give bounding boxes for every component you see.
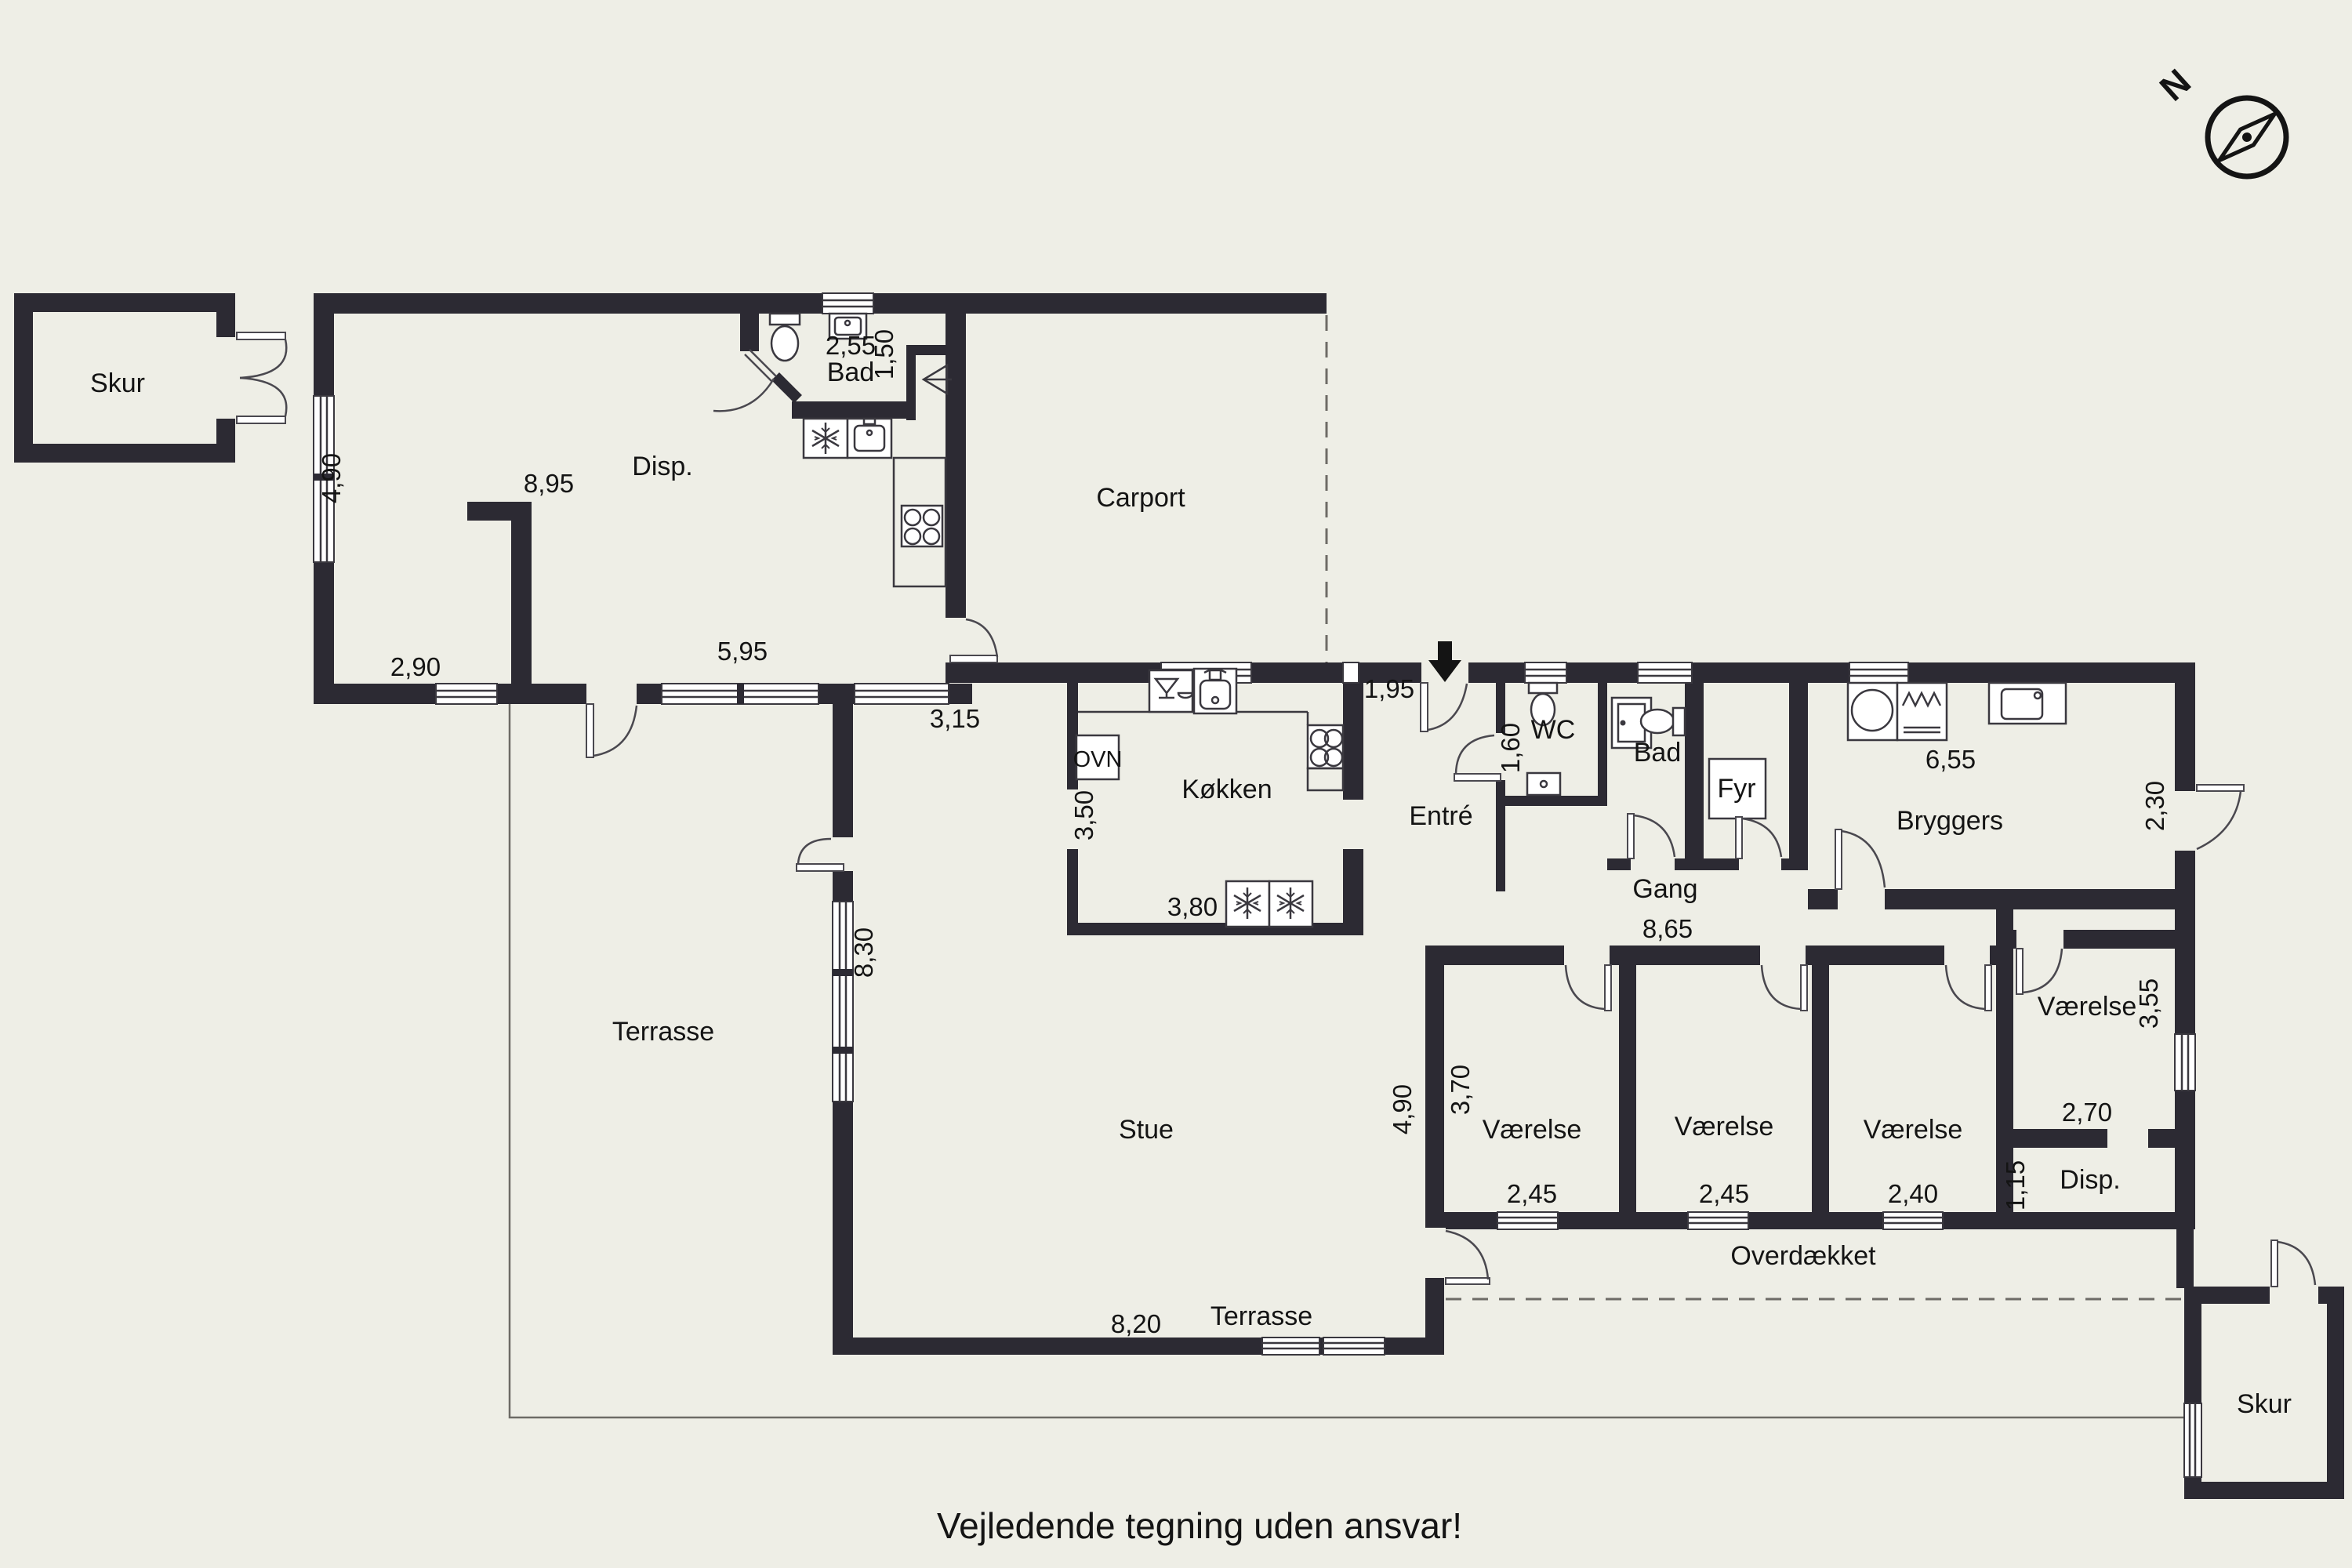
room-label-skur-nw: Skur <box>90 368 145 398</box>
door-room2 <box>1762 965 1807 1011</box>
floor-plan-drawing: Skur Disp. Bad Carport Køkken OVN Entré … <box>0 0 2352 1568</box>
freezer-icon <box>804 419 848 458</box>
window-315 <box>855 684 949 704</box>
dim-115: 1,15 <box>2001 1160 2030 1210</box>
dim-655: 6,55 <box>1926 745 1976 774</box>
freezer-icon <box>1226 881 1269 927</box>
dim-490-nw: 4,90 <box>317 453 346 503</box>
room-label-terrasse-west: Terrasse <box>612 1017 714 1047</box>
dim-595: 5,95 <box>717 637 768 666</box>
door-disp-terrace <box>586 704 637 757</box>
room-label-stue: Stue <box>1119 1115 1174 1145</box>
room-label-carport: Carport <box>1096 483 1185 513</box>
dim-270: 2,70 <box>2062 1098 2112 1127</box>
window-595 <box>662 684 818 704</box>
dim-160: 1,60 <box>1496 723 1525 773</box>
window-stue-south-2 <box>1323 1338 1385 1355</box>
room-label-skur-se: Skur <box>2237 1389 2292 1419</box>
door-bryggers <box>1835 829 1885 889</box>
window-290 <box>436 684 497 704</box>
door-stue-overdaekket <box>1446 1231 1490 1284</box>
window-bryggers <box>1849 662 1908 683</box>
door-bad-upper <box>713 350 776 411</box>
stove-icon <box>902 506 942 546</box>
window-room3 <box>1883 1212 1943 1229</box>
dim-230: 2,30 <box>2140 781 2169 831</box>
sink-icon <box>1194 669 1236 713</box>
room-label-overdaekket: Overdækket <box>1730 1241 1876 1271</box>
compass: N <box>2152 61 2286 176</box>
window-bad <box>1638 662 1692 683</box>
door-room4 <box>2016 949 2062 994</box>
dim-350: 3,50 <box>1069 790 1098 840</box>
dishwasher-icon <box>1149 670 1192 712</box>
door-skur-se <box>2271 1240 2315 1287</box>
window-room2 <box>1688 1212 1748 1229</box>
window-wc <box>1525 662 1566 683</box>
floor-plan-page: Skur Disp. Bad Carport Køkken OVN Entré … <box>0 0 2352 1568</box>
door-room3 <box>1946 965 1991 1011</box>
room-label-ovn: OVN <box>1073 747 1123 772</box>
dim-245-1: 2,45 <box>1507 1179 1557 1208</box>
kitchen-counter <box>1078 712 1308 725</box>
dim-290: 2,90 <box>390 652 441 681</box>
dim-315: 3,15 <box>930 704 980 733</box>
room-label-vaerelse-4: Værelse <box>2038 992 2137 1022</box>
stove-icon <box>1308 725 1343 790</box>
room-label-vaerelse-2: Værelse <box>1675 1112 1774 1142</box>
compass-north-label: N <box>2152 61 2198 109</box>
dim-895: 8,95 <box>524 469 574 498</box>
dim-245-2: 2,45 <box>1699 1179 1749 1208</box>
window-bad-upper <box>822 293 873 314</box>
drain-icon <box>924 365 952 394</box>
room-label-vaerelse-1: Værelse <box>1483 1115 1582 1145</box>
page-title: Vejledende tegning uden ansvar! <box>937 1505 1462 1546</box>
laundry-basket-icon <box>1897 683 1947 740</box>
window-entre-small <box>1343 662 1359 683</box>
sink-icon <box>1989 683 2066 724</box>
washing-machine-icon <box>1848 683 1897 740</box>
room-label-entre: Entré <box>1409 801 1472 831</box>
dim-240: 2,40 <box>1888 1179 1938 1208</box>
window-room1 <box>1497 1212 1558 1229</box>
door-entrance <box>1421 683 1467 731</box>
room-label-bad-upper: Bad <box>827 358 875 387</box>
room-label-kokken: Køkken <box>1181 775 1272 804</box>
door-bad <box>1628 814 1675 858</box>
toilet-icon <box>770 314 800 361</box>
room-label-vaerelse-3: Værelse <box>1864 1115 1963 1145</box>
dim-255: 2,55 <box>826 331 876 360</box>
door-bryggers-exterior <box>2197 785 2244 849</box>
sink-icon <box>848 419 891 458</box>
dim-355: 3,55 <box>2134 978 2163 1029</box>
room-label-bad: Bad <box>1634 738 1682 768</box>
door-room1 <box>1566 965 1611 1011</box>
dim-865: 8,65 <box>1642 914 1693 943</box>
window-stue-south-1 <box>1262 1338 1319 1355</box>
room-label-disp-upper: Disp. <box>632 452 692 481</box>
room-label-terrasse-south: Terrasse <box>1210 1301 1312 1331</box>
dim-370: 3,70 <box>1446 1065 1475 1115</box>
bathtub-icon <box>1641 708 1685 735</box>
room-label-bryggers: Bryggers <box>1896 806 2003 836</box>
room-label-disp-se: Disp. <box>2060 1165 2120 1195</box>
dim-830: 8,30 <box>849 927 878 978</box>
door-wc <box>1454 735 1501 781</box>
dim-490-stue: 4,90 <box>1388 1084 1417 1134</box>
freezer-icon <box>1269 881 1312 927</box>
dim-195: 1,95 <box>1364 674 1414 703</box>
dim-150: 1,50 <box>869 329 898 379</box>
dim-380: 3,80 <box>1167 892 1218 921</box>
dim-820: 8,20 <box>1111 1309 1161 1338</box>
room-label-wc: WC <box>1531 715 1576 745</box>
door-fyr <box>1736 817 1781 858</box>
window-skur-se <box>2184 1403 2201 1477</box>
room-label-gang: Gang <box>1632 874 1697 904</box>
sink-icon <box>1527 773 1560 795</box>
room-label-fyr: Fyr <box>1717 774 1755 804</box>
door-skur-nw <box>237 332 286 423</box>
window-room4 <box>2175 1034 2195 1091</box>
